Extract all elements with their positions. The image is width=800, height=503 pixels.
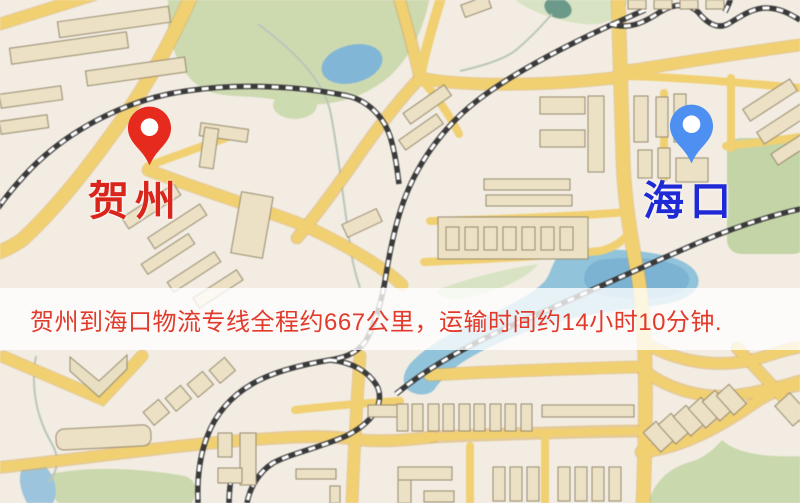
map-background bbox=[0, 0, 800, 503]
origin-pin bbox=[126, 104, 173, 168]
blue-map-pin-icon bbox=[668, 102, 715, 166]
destination-city-label: 海口 bbox=[643, 181, 737, 222]
red-map-pin-icon bbox=[126, 104, 173, 168]
route-info-banner: 贺州到海口物流专线全程约667公里，运输时间约14小时10分钟. bbox=[0, 288, 800, 350]
origin-city-label: 贺州 bbox=[88, 181, 182, 222]
map-graphic: 贺州 海口 贺州到海口物流专线全程约667公里，运输时间约14小时10分钟. bbox=[0, 0, 800, 503]
route-info-text: 贺州到海口物流专线全程约667公里，运输时间约14小时10分钟. bbox=[0, 302, 722, 337]
destination-pin bbox=[668, 102, 715, 166]
